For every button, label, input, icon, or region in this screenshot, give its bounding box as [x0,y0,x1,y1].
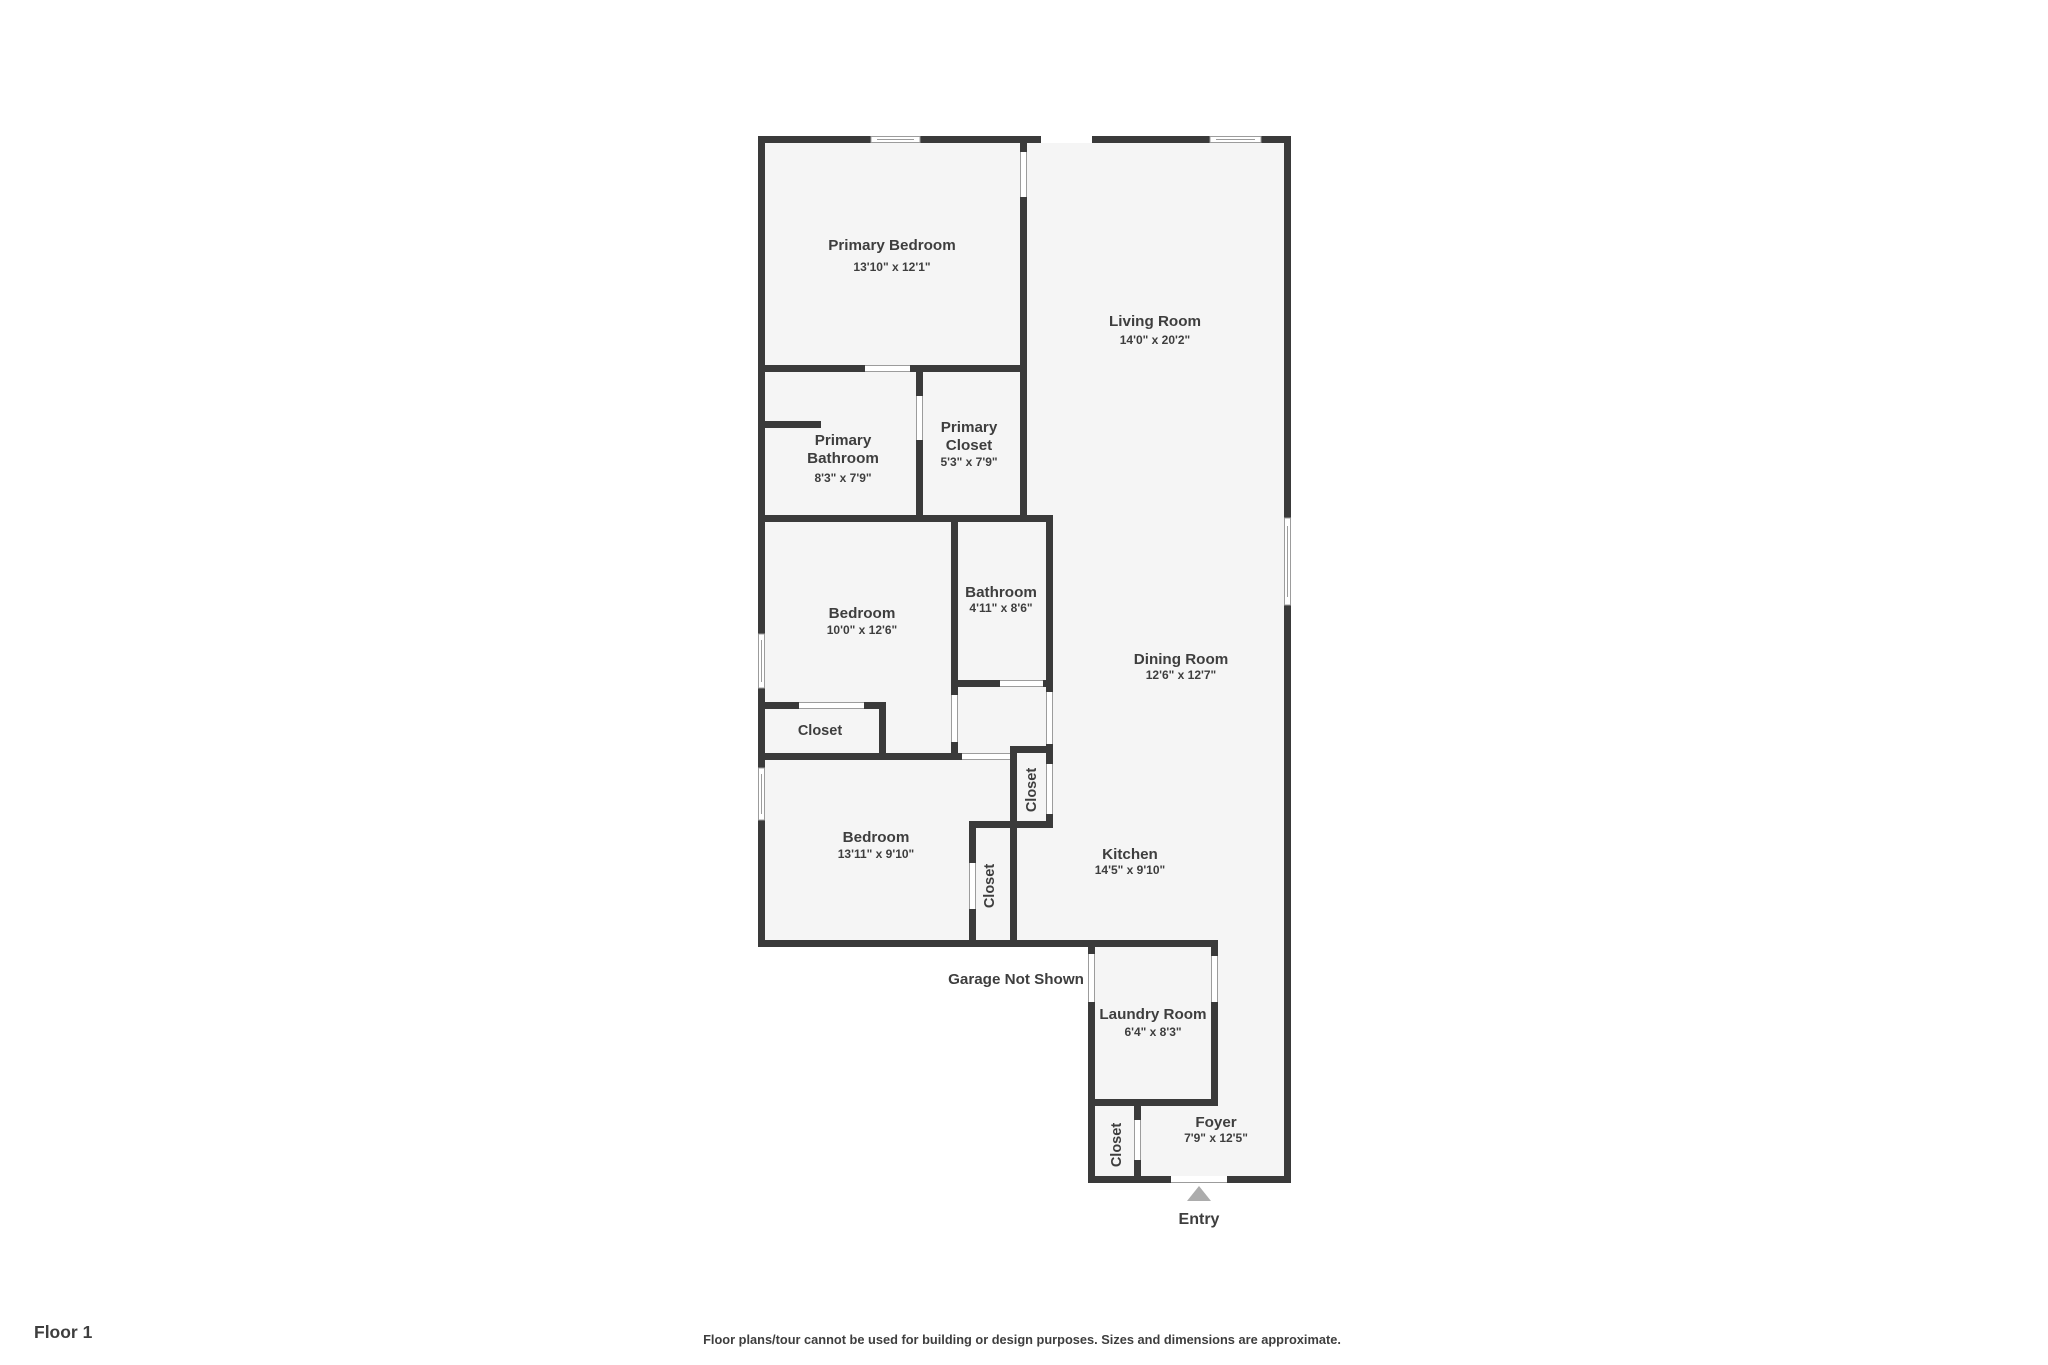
svg-text:Living Room: Living Room [1109,313,1201,330]
svg-text:4'11" x 8'6": 4'11" x 8'6" [969,601,1032,615]
svg-text:8'3" x 7'9": 8'3" x 7'9" [814,471,871,485]
svg-text:Closet: Closet [982,864,998,908]
svg-text:14'5" x 9'10": 14'5" x 9'10" [1095,863,1165,877]
svg-text:Closet: Closet [1109,1123,1125,1167]
svg-text:Garage Not Shown: Garage Not Shown [948,971,1084,988]
svg-text:Foyer: Foyer [1195,1114,1236,1131]
svg-text:Floor 1: Floor 1 [34,1322,93,1342]
svg-text:Closet: Closet [798,723,842,739]
svg-text:13'11" x 9'10": 13'11" x 9'10" [838,847,914,861]
svg-text:Laundry Room: Laundry Room [1099,1006,1206,1023]
svg-text:Bedroom: Bedroom [843,829,910,846]
svg-text:12'6" x 12'7": 12'6" x 12'7" [1146,668,1216,682]
svg-text:10'0" x 12'6": 10'0" x 12'6" [827,623,897,637]
svg-text:5'3" x 7'9": 5'3" x 7'9" [940,455,997,469]
svg-text:6'4" x 8'3": 6'4" x 8'3" [1124,1025,1181,1039]
svg-text:14'0" x 20'2": 14'0" x 20'2" [1120,333,1190,347]
svg-text:Primary: Primary [815,432,872,449]
svg-text:Bathroom: Bathroom [965,584,1037,601]
svg-text:Kitchen: Kitchen [1102,846,1158,863]
svg-text:Primary: Primary [941,419,998,436]
svg-text:13'10" x 12'1": 13'10" x 12'1" [853,260,930,274]
svg-text:Bathroom: Bathroom [807,450,879,467]
svg-text:Closet: Closet [1024,768,1040,812]
svg-text:Closet: Closet [946,437,992,454]
svg-text:Primary Bedroom: Primary Bedroom [828,237,955,254]
svg-text:Dining Room: Dining Room [1134,651,1228,668]
svg-text:7'9" x 12'5": 7'9" x 12'5" [1184,1131,1248,1145]
svg-text:Entry: Entry [1179,1211,1220,1228]
svg-text:Floor plans/tour cannot be use: Floor plans/tour cannot be used for buil… [703,1332,1341,1347]
svg-text:Bedroom: Bedroom [829,605,896,622]
